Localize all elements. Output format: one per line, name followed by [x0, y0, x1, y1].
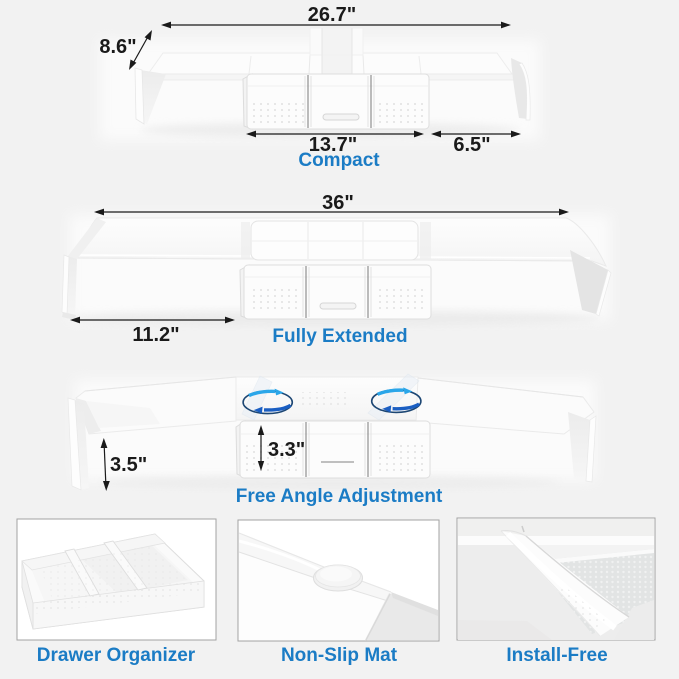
- svg-text:Fully Extended: Fully Extended: [272, 326, 407, 347]
- svg-text:Non-Slip Mat: Non-Slip Mat: [281, 645, 398, 666]
- svg-text:8.6": 8.6": [99, 36, 136, 58]
- svg-text:Compact: Compact: [298, 150, 380, 171]
- svg-text:Install-Free: Install-Free: [506, 645, 607, 666]
- svg-text:3.3": 3.3": [268, 439, 305, 461]
- svg-text:11.2": 11.2": [132, 324, 179, 346]
- svg-text:Drawer Organizer: Drawer Organizer: [37, 645, 196, 666]
- svg-text:6.5": 6.5": [453, 134, 490, 156]
- svg-text:Free Angle Adjustment: Free Angle Adjustment: [236, 486, 443, 507]
- svg-text:3.5": 3.5": [110, 454, 147, 476]
- svg-text:36": 36": [322, 192, 354, 214]
- svg-text:26.7": 26.7": [308, 4, 356, 26]
